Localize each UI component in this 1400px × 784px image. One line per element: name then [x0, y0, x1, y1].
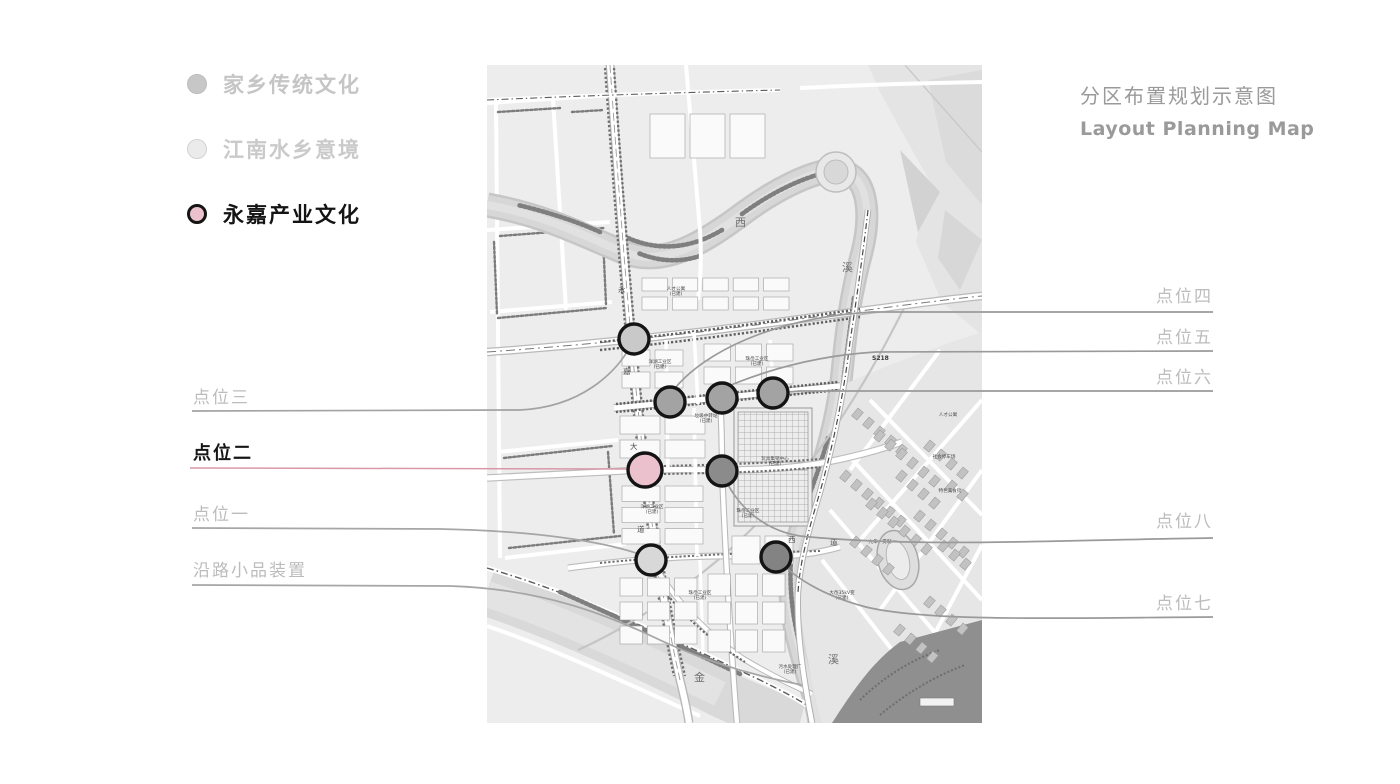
legend-item-label: 江南水乡意境: [223, 134, 361, 164]
map-label: 溪: [842, 261, 854, 274]
title-block: 分区布置规划示意图 Layout Planning Map: [1080, 80, 1314, 140]
map-label: 金: [694, 670, 706, 684]
annotation-label-roadside: 沿路小品装置: [193, 561, 307, 581]
legend-dot-gray-icon: [187, 74, 207, 94]
map-label: 人才公寓: [939, 411, 958, 418]
page-title-en: Layout Planning Map: [1080, 118, 1314, 140]
legend-item-label: 家乡传统文化: [223, 69, 361, 99]
map-label: 社会停车场: [933, 453, 956, 460]
map-label: 大: [630, 441, 638, 451]
map-label: 特色美食街: [939, 487, 962, 494]
legend-item-label: 永嘉产业文化: [223, 199, 361, 229]
annotation-label-pt8: 点位八: [1156, 512, 1213, 532]
annotation-label-pt3: 点位三: [193, 388, 250, 408]
annotation-label-pt5: 点位五: [1156, 328, 1213, 348]
legend-dot-pink-icon: [187, 204, 207, 224]
page-title-zh: 分区布置规划示意图: [1080, 80, 1314, 109]
map-label: 道: [637, 524, 645, 534]
map-label: 道: [830, 537, 838, 547]
annotation-label-pt1: 点位一: [193, 505, 250, 525]
legend-dot-lightgray-icon: [187, 139, 207, 159]
legend: 家乡传统文化 江南水乡意境 永嘉产业文化: [187, 72, 361, 267]
map-label: 西: [735, 216, 747, 229]
legend-item-jiangnan-water-town[interactable]: 江南水乡意境: [187, 137, 361, 161]
annotation-label-pt6: 点位六: [1156, 368, 1213, 388]
planning-basemap: 西溪金溪永嘉大道西道S218人才公寓(已建)洋湖工业区(已建)珠岙工业区(已建)…: [487, 65, 982, 723]
map-label: 永: [618, 284, 626, 294]
annotation-label-pt7: 点位七: [1156, 594, 1213, 614]
map-label: 西: [788, 535, 796, 544]
map-label: 嘉: [623, 366, 631, 376]
legend-item-hometown-culture[interactable]: 家乡传统文化: [187, 72, 361, 96]
legend-item-yongjia-industry-culture[interactable]: 永嘉产业文化: [187, 202, 361, 226]
annotation-label-pt4: 点位四: [1156, 287, 1213, 307]
map-label: 九年一贯制: [869, 538, 892, 545]
planning-slide: 家乡传统文化 江南水乡意境 永嘉产业文化 分区布置规划示意图 Layout Pl…: [0, 0, 1400, 784]
annotation-label-pt2: 点位二: [193, 444, 253, 464]
map-label: 溪: [828, 653, 840, 666]
map-label: S218: [872, 355, 889, 362]
